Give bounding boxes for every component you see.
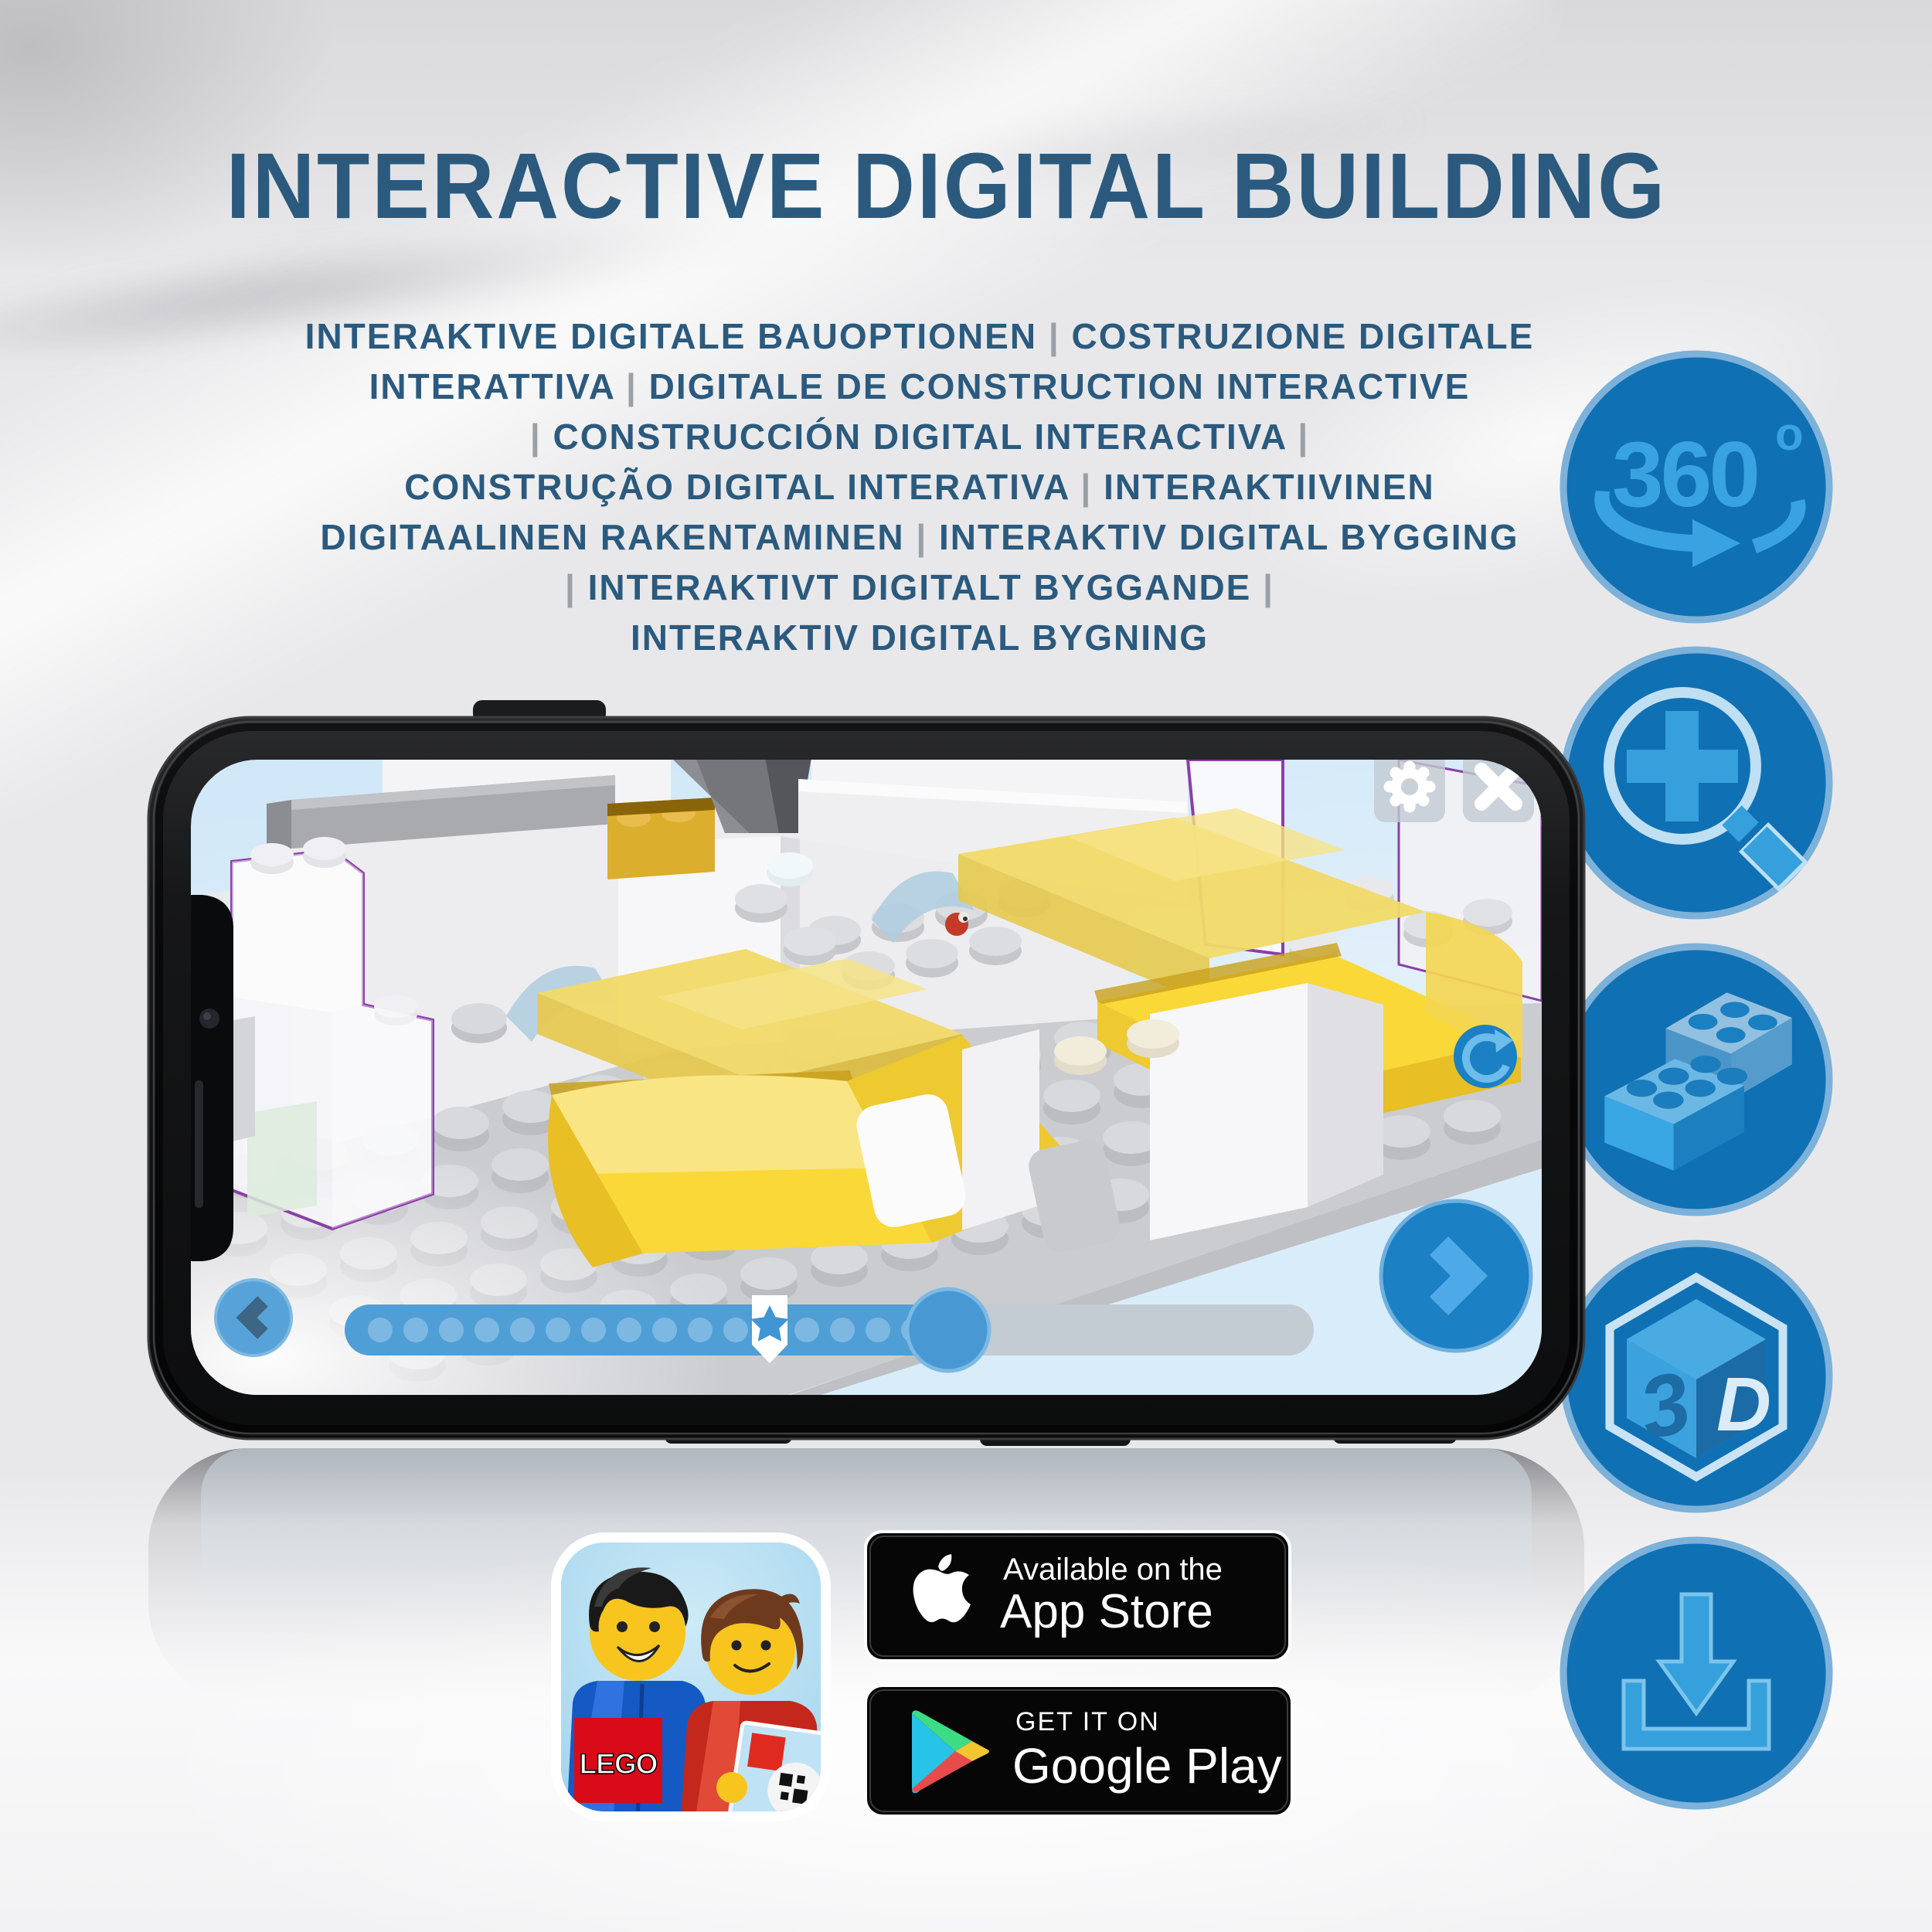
svg-text:D: D [1716,1362,1771,1447]
svg-text:App Store: App Store [1000,1585,1213,1638]
svg-text:Available on the: Available on the [1003,1553,1223,1587]
svg-text:LEGO: LEGO [580,1748,658,1780]
svg-text:o: o [1775,408,1804,460]
svg-text:Google Play: Google Play [1012,1738,1282,1794]
svg-text:360: 360 [1612,423,1757,526]
svg-text:GET IT ON: GET IT ON [1015,1707,1160,1736]
